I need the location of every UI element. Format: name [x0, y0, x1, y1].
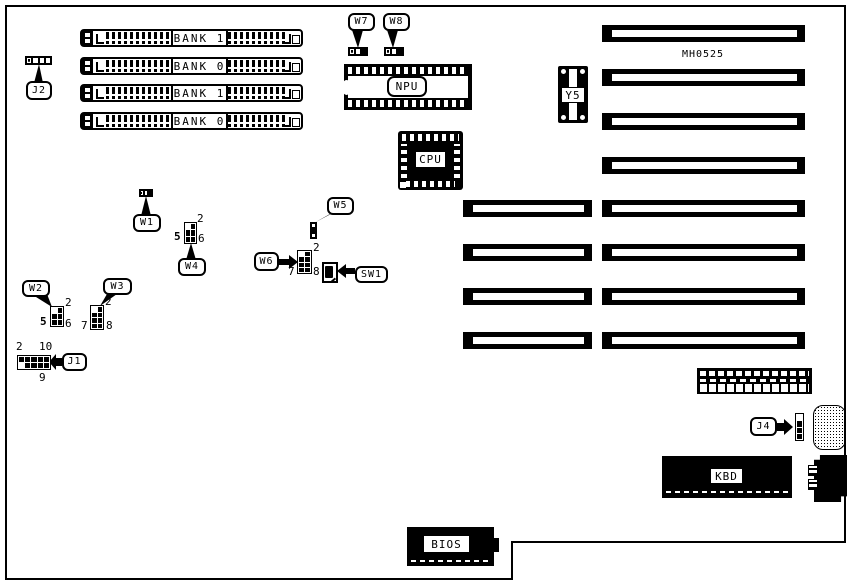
pin	[38, 357, 43, 362]
bank-label: BANK 1	[171, 29, 228, 47]
mount-hole	[561, 69, 566, 74]
bank-bracket	[96, 62, 104, 72]
pin	[98, 318, 103, 323]
expansion-slot	[602, 244, 805, 261]
connector-pin	[808, 479, 818, 490]
pin	[46, 58, 50, 63]
pin	[797, 421, 802, 426]
cpu-pin1-notch	[400, 182, 406, 188]
w6-pin7-label: 7	[288, 266, 295, 277]
bank-label: BANK 1	[171, 84, 228, 102]
bank-end-pin	[292, 118, 300, 127]
pin	[31, 357, 36, 362]
bank-pin-hatch	[106, 115, 171, 127]
pin	[52, 320, 57, 325]
pin-1	[19, 363, 24, 368]
pin	[305, 263, 310, 267]
memory-bank-row-3: BANK 1	[80, 84, 303, 102]
pin	[191, 237, 195, 242]
callout-w2: W2	[22, 280, 50, 297]
w6-pin8-label: 8	[313, 266, 320, 277]
pin-1	[386, 49, 390, 54]
pin	[305, 257, 310, 261]
w4-pin6-label: 6	[198, 233, 205, 244]
power-connector	[697, 368, 812, 394]
expansion-slot-ext	[463, 288, 592, 305]
bank-end-pins	[82, 59, 93, 73]
bank-bracket	[96, 117, 104, 127]
w1-jumper	[139, 189, 153, 197]
bank-label: BANK 0	[171, 57, 228, 75]
mount-hole	[561, 115, 566, 120]
callout-w8: W8	[383, 13, 410, 31]
bank-bracket	[283, 117, 291, 127]
pin	[191, 224, 195, 229]
capacitor	[813, 405, 846, 450]
npu-pin-row	[348, 100, 468, 107]
expansion-slot-ext	[463, 200, 592, 217]
sw1-dip-switch	[322, 262, 338, 283]
w3-jumper-block	[90, 305, 104, 330]
callout-j2: J2	[26, 81, 52, 100]
w7-pointer	[352, 30, 363, 48]
w6-jumper-block	[297, 250, 312, 274]
pin	[797, 434, 802, 439]
pin	[33, 58, 37, 63]
pin	[149, 191, 151, 195]
mount-hole	[580, 115, 585, 120]
pin	[44, 363, 49, 368]
pin	[98, 324, 103, 329]
pin-1	[27, 58, 31, 63]
board-id-text: MH0525	[668, 50, 738, 60]
expansion-slot	[602, 288, 805, 305]
w2-jumper-block	[50, 306, 64, 327]
w8-pointer	[387, 30, 398, 48]
pin-1	[299, 252, 304, 256]
pin	[312, 234, 315, 237]
j1-pin2-label: 2	[16, 341, 23, 352]
pin	[92, 313, 97, 318]
pin	[92, 324, 97, 329]
expansion-slot	[602, 113, 805, 130]
w4-jumper-block	[184, 222, 197, 244]
j2-header	[25, 56, 52, 65]
npu-pin-row	[348, 67, 468, 74]
pin	[58, 314, 63, 319]
pin	[25, 363, 30, 368]
w8-jumper	[384, 47, 404, 56]
npu-label: NPU	[387, 76, 427, 97]
cpu-pin-col	[401, 144, 407, 178]
w6-pin2-label: 2	[313, 242, 320, 253]
pin	[186, 237, 190, 242]
sw1-lever	[325, 266, 333, 278]
pin-1	[797, 415, 802, 420]
keyboard-din-connector	[814, 455, 847, 502]
mount-hole	[580, 69, 585, 74]
pin-1	[141, 191, 143, 195]
bank-bracket	[96, 89, 104, 99]
w7-jumper	[348, 47, 368, 56]
bank-pin-hatch	[228, 32, 288, 44]
pin	[299, 263, 304, 267]
bank-pin-hatch	[106, 32, 171, 44]
expansion-slot	[602, 200, 805, 217]
w3-pin7-label: 7	[81, 320, 88, 331]
bank-bracket	[283, 34, 291, 44]
bios-pin-dashes	[411, 560, 490, 562]
bios-tab	[493, 538, 499, 552]
w1-pointer	[141, 196, 151, 216]
memory-bank-row-2: BANK 0	[80, 57, 303, 75]
bank-pin-hatch	[228, 60, 288, 72]
npu-notch	[342, 80, 351, 95]
callout-w3: W3	[103, 278, 132, 295]
callout-w4: W4	[178, 258, 206, 276]
pin	[299, 268, 304, 272]
power-pin-row	[700, 384, 809, 392]
memory-bank-row-1: BANK 1	[80, 29, 303, 47]
expansion-slot	[602, 157, 805, 174]
pin	[145, 191, 147, 195]
pin	[299, 257, 304, 261]
connector-pin	[808, 465, 818, 476]
pin-1	[52, 308, 57, 313]
pin	[58, 308, 63, 313]
bank-end-pins	[82, 31, 93, 45]
bank-bracket	[96, 34, 104, 44]
bios-label: BIOS	[423, 535, 470, 553]
w4-pin5-label: 5	[174, 231, 181, 242]
j1-pin9-label: 9	[39, 372, 46, 383]
pin	[92, 318, 97, 323]
w2-pin6-label: 6	[65, 318, 72, 329]
w2-pin2-label: 2	[65, 297, 72, 308]
expansion-slot-ext	[463, 244, 592, 261]
j1-pin10-label: 10	[39, 341, 52, 352]
pin	[191, 230, 195, 235]
j4-header	[795, 413, 804, 441]
j1-header-block	[17, 355, 51, 370]
bank-label: BANK 0	[171, 112, 228, 130]
w3-pin2-label: 2	[105, 296, 112, 307]
bank-bracket	[283, 89, 291, 99]
callout-j4: J4	[750, 417, 777, 436]
bank-end-pins	[82, 114, 93, 128]
pin	[398, 49, 402, 54]
power-dash-row	[700, 379, 809, 382]
callout-w6: W6	[254, 252, 279, 271]
pin	[305, 252, 310, 256]
pin	[98, 307, 103, 312]
cpu-pin-col	[454, 144, 460, 178]
pin	[19, 357, 24, 362]
pin	[25, 357, 30, 362]
pin	[362, 49, 366, 54]
expansion-slot	[602, 332, 805, 349]
callout-w7: W7	[348, 13, 375, 31]
callout-w5: W5	[327, 197, 354, 215]
y5-label: Y5	[561, 87, 585, 103]
bank-end-pin	[292, 63, 300, 72]
pin	[38, 363, 43, 368]
pin	[305, 268, 310, 272]
bank-end-pin	[292, 35, 300, 44]
pin	[58, 320, 63, 325]
pin	[31, 363, 36, 368]
expansion-slot	[602, 25, 805, 42]
expansion-slot	[602, 69, 805, 86]
power-pin-row	[700, 371, 809, 376]
callout-sw1: SW1	[355, 266, 388, 283]
pin	[312, 224, 315, 227]
pin	[98, 313, 103, 318]
pin	[356, 49, 360, 54]
pin-1	[186, 224, 190, 229]
sw1-arrow	[337, 264, 355, 278]
pin-1	[350, 49, 354, 54]
sw1-tick	[331, 278, 336, 283]
pin	[52, 314, 57, 319]
bank-pin-hatch	[228, 115, 288, 127]
callout-w1: W1	[133, 214, 161, 232]
bank-pin-hatch	[106, 87, 171, 99]
w4-pin2-label: 2	[197, 213, 204, 224]
pin	[312, 229, 315, 232]
bank-pin-hatch	[106, 60, 171, 72]
pin	[392, 49, 396, 54]
expansion-slot-ext	[463, 332, 592, 349]
cpu-pin-row	[406, 181, 455, 187]
bank-end-pin	[292, 90, 300, 99]
kbd-pin-dashes	[666, 491, 788, 493]
pin	[186, 230, 190, 235]
pin-1	[92, 307, 97, 312]
bank-bracket	[283, 62, 291, 72]
w3-pin8-label: 8	[106, 320, 113, 331]
pin	[797, 428, 802, 433]
cpu-pin-row	[402, 134, 459, 141]
callout-j1: J1	[62, 353, 87, 371]
w2-pin5-label: 5	[40, 316, 47, 327]
motherboard-diagram: BANK 1 BANK 0 BANK 1 BANK 0 J2	[0, 0, 851, 587]
w5-jumper	[310, 222, 317, 239]
bank-end-pins	[82, 86, 93, 100]
bank-pin-hatch	[228, 87, 288, 99]
j4-arrow	[777, 419, 793, 435]
memory-bank-row-4: BANK 0	[80, 112, 303, 130]
cpu-label: CPU	[415, 151, 446, 168]
pin	[40, 58, 44, 63]
pin	[44, 357, 49, 362]
kbd-label: KBD	[710, 468, 743, 484]
